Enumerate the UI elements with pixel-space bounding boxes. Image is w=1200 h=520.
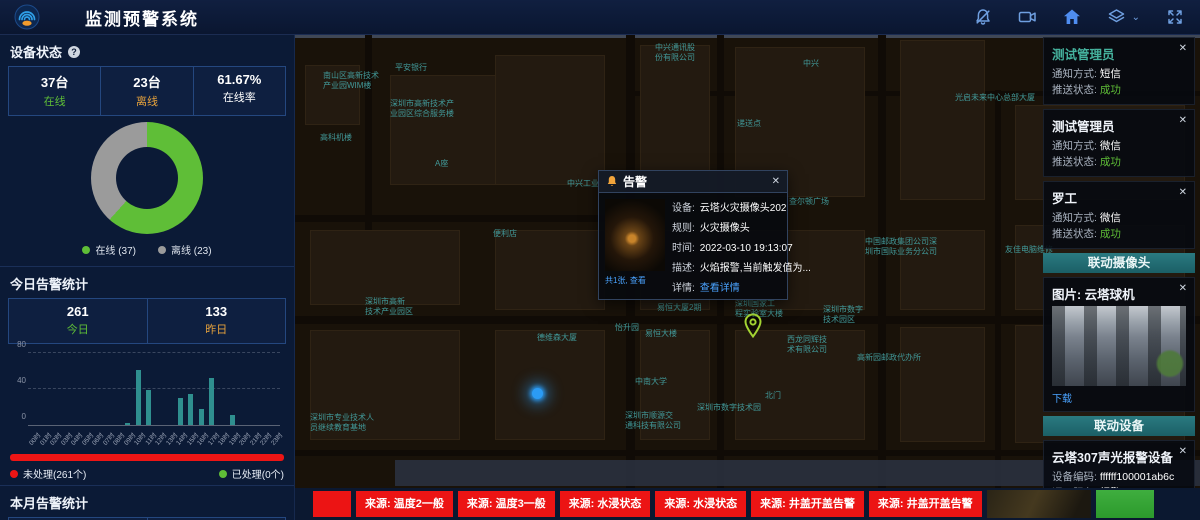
map-building	[495, 55, 605, 185]
device-value: ffffff100001ab6c	[1100, 471, 1174, 483]
bar	[136, 370, 141, 425]
map-label: A座	[435, 159, 448, 169]
map-label: 便利店	[493, 229, 517, 239]
detail-label: 规则:	[672, 219, 695, 239]
y-axis-tick: 0	[12, 412, 26, 421]
alarm-bell-icon	[606, 175, 618, 188]
month-alerts-title: 本月告警统计	[10, 493, 88, 512]
fullscreen-icon[interactable]	[1166, 8, 1184, 26]
map-label: 德维森大厦	[537, 333, 577, 343]
alert-detail-row: 详情:查看详情	[672, 279, 811, 299]
app-logo-icon	[14, 4, 40, 30]
alert-chip-partial[interactable]	[313, 491, 351, 517]
detail-label: 时间:	[672, 239, 695, 259]
unhandled-label: 未处理(261个)	[23, 466, 86, 481]
device-status-title-row: 设备状态 ?	[0, 35, 294, 66]
alert-chip[interactable]: 来源: 温度2一般	[356, 491, 453, 517]
linked-devices-header: 联动设备	[1043, 416, 1195, 436]
donut-hole	[116, 147, 178, 209]
alert-thumb-wrap: 共1张, 查看	[605, 199, 665, 299]
legend-label: 离线 (23)	[171, 242, 212, 257]
map-label: 递送点	[737, 119, 761, 129]
notification-card: 测试管理员✕通知方式: 微信推送状态: 成功	[1043, 109, 1195, 177]
linked-device-card: 云塔307声光报警设备✕设备编码: ffffff100001ab6c调用服务: …	[1043, 440, 1195, 488]
alert-detail-rows: 设备:云塔火灾摄像头202规则:火灾摄像头时间:2022-03-10 19:13…	[672, 199, 811, 299]
alert-detail-row: 规则:火灾摄像头	[672, 219, 811, 239]
today-alerts-title-row: 今日告警统计	[0, 267, 294, 298]
notification-row: 推送状态: 成功	[1052, 82, 1186, 98]
device-card-close-icon[interactable]: ✕	[1179, 446, 1187, 457]
map-label: 深圳市数字技术园	[697, 403, 761, 413]
stat-value: 37台	[9, 72, 100, 91]
stat-cell: 133昨日	[147, 299, 286, 343]
download-link[interactable]: 下载	[1052, 390, 1186, 405]
alert-detail-row: 时间:2022-03-10 19:13:07	[672, 239, 811, 259]
notification-recipient: 测试管理员	[1052, 44, 1186, 63]
device-status-title: 设备状态	[10, 42, 62, 61]
detail-value: 云塔火灾摄像头202	[700, 199, 787, 219]
camera-card-close-icon[interactable]: ✕	[1179, 283, 1187, 294]
bar	[188, 394, 193, 426]
map-label: 高科机楼	[320, 133, 352, 143]
bar	[209, 378, 214, 425]
camera-image-card: 图片: 云塔球机 ✕ 下载	[1043, 277, 1195, 412]
map-label: 南山区高新技术 产业园WIM楼	[323, 71, 379, 92]
alert-detail-row: 描述:火焰报警,当前触发值为...	[672, 259, 811, 279]
stat-label: 在线	[9, 93, 100, 109]
notification-value: 微信	[1100, 140, 1121, 152]
alert-popup-title: 告警	[623, 173, 767, 190]
map-building	[495, 230, 605, 310]
device-donut-chart: 在线 (37)离线 (23)	[0, 116, 294, 266]
alert-popup: 告警 ✕ 共1张, 查看 设备:云塔火灾摄像头202规则:火灾摄像头时间:202…	[598, 170, 788, 300]
video-camera-icon[interactable]	[1018, 8, 1037, 26]
month-alerts-title-row: 本月告警统计	[0, 486, 294, 517]
alert-image-thumbnail-green[interactable]	[1096, 490, 1154, 518]
notification-row: 通知方式: 微信	[1052, 138, 1186, 154]
app-root: 监测预警系统 ⌄	[0, 0, 1200, 520]
camera-snapshot-image	[1052, 306, 1186, 386]
stat-cell: 261今日	[9, 299, 147, 343]
alert-chip[interactable]: 来源: 井盖开盖告警	[751, 491, 864, 517]
stat-label: 昨日	[148, 321, 286, 337]
notification-value: 成功	[1100, 84, 1121, 96]
map-building	[900, 327, 985, 442]
stat-value: 261	[9, 304, 147, 319]
alert-chip[interactable]: 来源: 水浸状态	[560, 491, 651, 517]
popup-close-icon[interactable]: ✕	[772, 176, 780, 187]
device-name: 云塔307声光报警设备	[1052, 447, 1186, 466]
stat-value: 61.67%	[194, 72, 285, 87]
left-panel: 设备状态 ? 37台在线23台离线61.67%在线率 在线 (37)离线 (23…	[0, 35, 295, 520]
linked-device-list: 云塔307声光报警设备✕设备编码: ffffff100001ab6c调用服务: …	[1043, 440, 1195, 488]
help-icon[interactable]: ?	[68, 46, 80, 58]
map-label: 深圳市高新技术产 业园区综合服务楼	[390, 99, 454, 120]
notification-close-icon[interactable]: ✕	[1179, 43, 1187, 54]
red-dot-icon	[10, 470, 18, 478]
alert-popup-body: 共1张, 查看 设备:云塔火灾摄像头202规则:火灾摄像头时间:2022-03-…	[599, 193, 787, 305]
device-row: 设备编码: ffffff100001ab6c	[1052, 469, 1186, 485]
linked-camera-header: 联动摄像头	[1043, 253, 1195, 273]
chevron-down-icon[interactable]: ⌄	[1132, 12, 1140, 23]
notification-value: 短信	[1100, 68, 1121, 80]
alert-image-thumbnail[interactable]	[987, 490, 1091, 518]
notification-close-icon[interactable]: ✕	[1179, 187, 1187, 198]
progress-legend: 未处理(261个) 已处理(0个)	[10, 466, 284, 481]
notification-recipient: 罗工	[1052, 188, 1186, 207]
handled-legend: 已处理(0个)	[219, 466, 284, 481]
legend-dot-icon	[82, 246, 90, 254]
notification-row: 推送状态: 成功	[1052, 226, 1186, 242]
detail-label: 设备:	[672, 199, 695, 219]
unhandled-legend: 未处理(261个)	[10, 466, 86, 481]
detail-value: 2022-03-10 19:13:07	[700, 239, 793, 259]
bar	[230, 415, 235, 425]
donut-legend: 在线 (37)离线 (23)	[0, 242, 294, 257]
legend-item: 在线 (37)	[82, 242, 136, 257]
device-status-stats: 37台在线23台离线61.67%在线率	[8, 66, 286, 116]
notification-value: 微信	[1100, 212, 1121, 224]
bar	[199, 409, 204, 425]
map-label: 光启未来中心总部大厦	[955, 93, 1035, 103]
stat-value: 133	[148, 304, 286, 319]
map-label: 中兴	[803, 59, 819, 69]
stat-label: 离线	[101, 93, 192, 109]
detail-label: 描述:	[672, 259, 695, 279]
map-label: 中兴通讯股 份有限公司	[655, 43, 695, 64]
map-label: 西龙同辉技 术有限公司	[787, 335, 827, 356]
alert-chip[interactable]: 来源: 温度3一般	[458, 491, 555, 517]
alert-popup-header: 告警 ✕	[599, 171, 787, 193]
alert-chip[interactable]: 来源: 井盖开盖告警	[869, 491, 982, 517]
stat-label: 今日	[9, 321, 147, 337]
stat-cell: 23台离线	[100, 67, 192, 115]
handled-label: 已处理(0个)	[232, 466, 284, 481]
notification-value: 成功	[1100, 156, 1121, 168]
map-road	[295, 215, 635, 222]
notification-row: 通知方式: 微信	[1052, 210, 1186, 226]
app-header: 监测预警系统 ⌄	[0, 0, 1200, 35]
bar-plot-area: 0408000时01时02时03时04时05时06时07时08时09时10时11…	[28, 354, 280, 426]
detail-value: 火灾摄像头	[700, 219, 750, 239]
layers-icon[interactable]	[1107, 8, 1126, 26]
stat-cell: 37台在线	[9, 67, 100, 115]
thumbnail-view-link[interactable]: 共1张, 查看	[605, 275, 665, 286]
notification-value: 成功	[1100, 228, 1121, 240]
bell-muted-icon[interactable]	[974, 8, 992, 26]
bar	[146, 390, 151, 425]
notification-row: 推送状态: 成功	[1052, 154, 1186, 170]
location-pin-icon[interactable]	[743, 313, 763, 339]
stat-label: 在线率	[194, 89, 285, 105]
stat-value: 23台	[101, 72, 192, 91]
bar	[178, 398, 183, 425]
notification-close-icon[interactable]: ✕	[1179, 115, 1187, 126]
legend-label: 在线 (37)	[95, 242, 136, 257]
detail-label: 详情:	[672, 279, 695, 299]
today-alerts-title: 今日告警统计	[10, 274, 88, 293]
notification-card: 罗工✕通知方式: 微信推送状态: 成功	[1043, 181, 1195, 249]
home-icon[interactable]	[1063, 8, 1081, 26]
map-label: 北门	[765, 391, 781, 401]
month-alerts-section: 本月告警统计 7631146	[0, 485, 294, 520]
gridline	[28, 352, 280, 353]
map-label: 怡升园	[615, 323, 639, 333]
map-label: 高新园邮政代办所	[857, 353, 921, 363]
map-building	[495, 330, 605, 440]
notification-row: 通知方式: 短信	[1052, 66, 1186, 82]
map-building	[900, 40, 985, 200]
alert-detail-row: 设备:云塔火灾摄像头202	[672, 199, 811, 219]
page-title: 监测预警系统	[85, 5, 199, 30]
y-axis-tick: 40	[12, 376, 26, 385]
today-alerts-stats: 261今日133昨日	[8, 298, 286, 344]
alert-snapshot-thumbnail[interactable]	[605, 199, 665, 271]
map-label: 深圳市专业技术人 员继续教育基地	[310, 413, 374, 434]
map-label: 深圳市数字 技术园区	[823, 305, 863, 326]
y-axis-tick: 80	[12, 340, 26, 349]
map-building	[310, 230, 460, 305]
view-detail-link[interactable]: 查看详情	[700, 279, 740, 299]
camera-image-title: 图片: 云塔球机	[1052, 284, 1186, 303]
bar	[125, 423, 130, 425]
map-label: 深圳市高新 技术产业园区	[365, 297, 413, 318]
legend-dot-icon	[158, 246, 166, 254]
alert-chip[interactable]: 来源: 水浸状态	[655, 491, 746, 517]
today-alerts-section: 今日告警统计 261今日133昨日 0408000时01时02时03时04时05…	[0, 266, 294, 481]
hourly-alert-bar-chart: 0408000时01时02时03时04时05时06时07时08时09时10时11…	[10, 350, 284, 450]
map-label: 易恒大楼	[645, 329, 677, 339]
bottom-alert-strip: 来源: 温度2一般来源: 温度3一般来源: 水浸状态来源: 水浸状态来源: 井盖…	[295, 488, 1200, 520]
map-label: 中国邮政集团公司深 圳市国际业务分公司	[865, 237, 937, 258]
notification-recipient: 测试管理员	[1052, 116, 1186, 135]
stat-cell: 61.67%在线率	[193, 67, 285, 115]
map-label: 深圳市顺源交 通科技有限公司	[625, 411, 681, 432]
right-panel: 测试管理员✕通知方式: 短信推送状态: 成功测试管理员✕通知方式: 微信推送状态…	[1043, 37, 1195, 488]
map-road	[878, 35, 886, 520]
notification-card: 测试管理员✕通知方式: 短信推送状态: 成功	[1043, 37, 1195, 105]
map-label: 中南大学	[635, 377, 667, 387]
unhandled-progress-bar	[10, 454, 284, 461]
alert-device-marker[interactable]	[532, 388, 543, 399]
header-actions: ⌄	[974, 8, 1184, 26]
green-dot-icon	[219, 470, 227, 478]
device-status-section: 设备状态 ? 37台在线23台离线61.67%在线率 在线 (37)离线 (23…	[0, 35, 294, 266]
detail-value: 火焰报警,当前触发值为...	[700, 259, 811, 279]
map-label: 平安银行	[395, 63, 427, 73]
gridline	[28, 388, 280, 389]
notification-list: 测试管理员✕通知方式: 短信推送状态: 成功测试管理员✕通知方式: 微信推送状态…	[1043, 37, 1195, 249]
legend-item: 离线 (23)	[158, 242, 212, 257]
